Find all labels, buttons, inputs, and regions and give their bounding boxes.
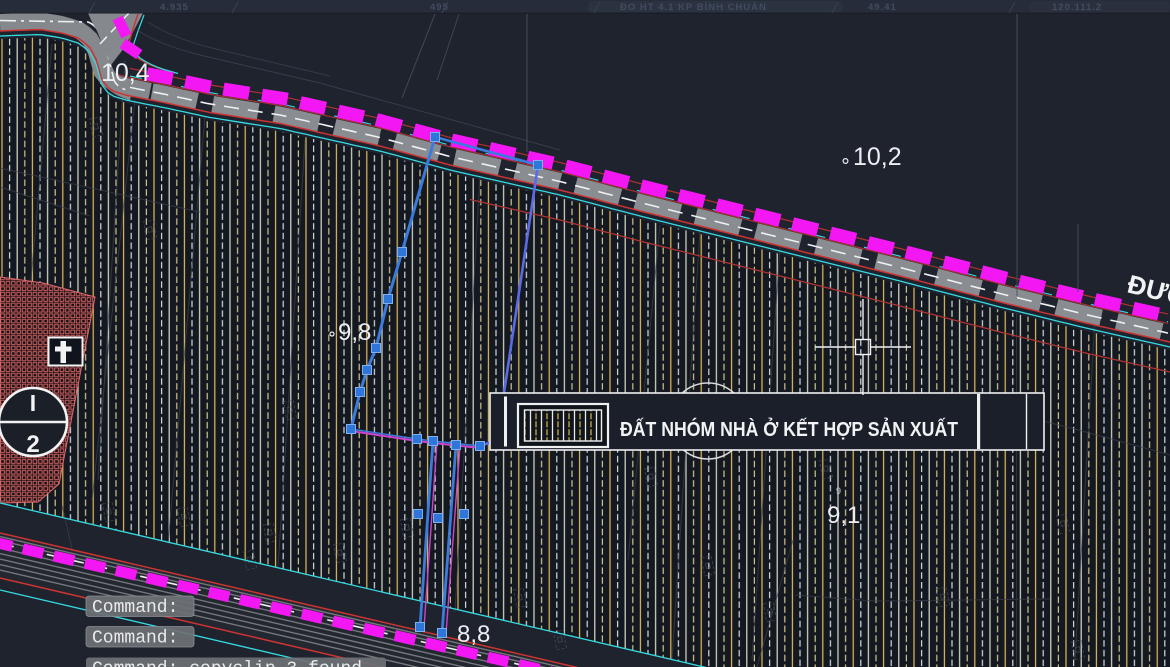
svg-text:9,1: 9,1 bbox=[827, 502, 860, 529]
svg-text:10,4: 10,4 bbox=[101, 59, 150, 87]
svg-text:10,2: 10,2 bbox=[853, 143, 902, 171]
svg-text:9,8: 9,8 bbox=[338, 319, 371, 346]
svg-text:2: 2 bbox=[26, 431, 39, 458]
svg-text:ĐẤT NHÓM NHÀ Ở KẾT HỢP SẢN XUẤ: ĐẤT NHÓM NHÀ Ở KẾT HỢP SẢN XUẤT bbox=[620, 417, 958, 441]
svg-text:495: 495 bbox=[430, 2, 449, 13]
svg-text:Command:: Command: bbox=[92, 629, 178, 649]
svg-text:I: I bbox=[30, 390, 36, 416]
svg-text:9: 9 bbox=[836, 486, 841, 496]
svg-text:Command:: Command: bbox=[92, 598, 178, 618]
svg-text:8,8: 8,8 bbox=[457, 621, 490, 648]
svg-text:49.41: 49.41 bbox=[868, 2, 897, 13]
svg-text:ĐO HT 4.1 KP BÌNH CHUẨN: ĐO HT 4.1 KP BÌNH CHUẨN bbox=[620, 1, 767, 13]
svg-text:4.935: 4.935 bbox=[160, 2, 189, 13]
svg-text:120.111.2: 120.111.2 bbox=[1052, 2, 1102, 13]
svg-text:Command: copyclip 3 found: Command: copyclip 3 found bbox=[92, 660, 362, 667]
